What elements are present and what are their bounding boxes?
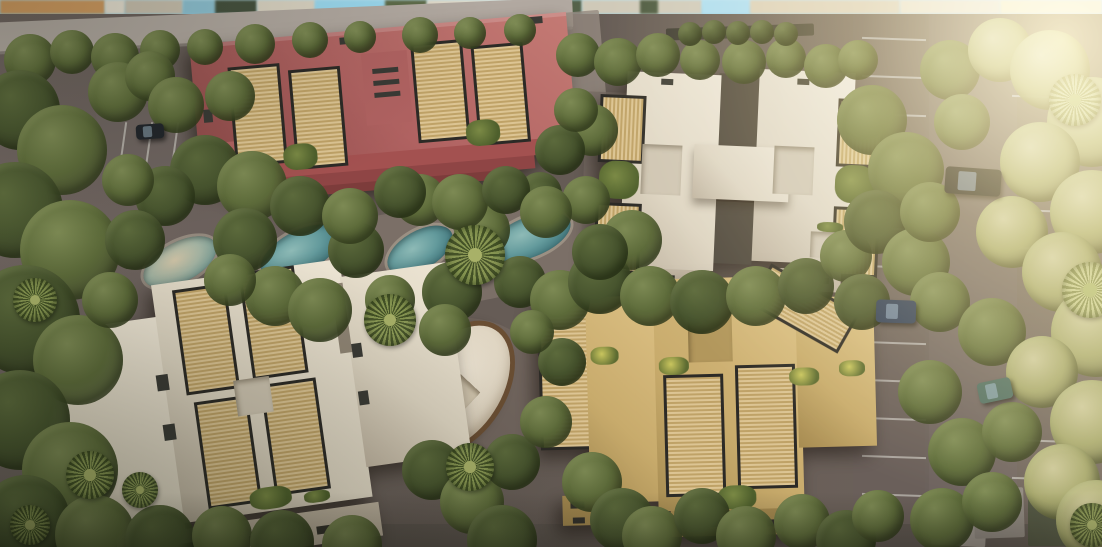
gap	[716, 73, 759, 151]
planter	[590, 346, 618, 365]
tree-canopy	[680, 40, 720, 80]
tree-canopy	[722, 40, 766, 84]
palm-tree	[13, 278, 57, 322]
palm-tree	[446, 443, 494, 491]
vent	[358, 390, 370, 405]
palm-crown-core	[464, 461, 476, 473]
vent	[661, 79, 673, 86]
tree-canopy	[204, 254, 256, 306]
palm-tree	[1049, 74, 1101, 126]
vent	[351, 343, 363, 358]
palm-tree	[122, 472, 158, 508]
palm-crown-core	[25, 520, 35, 530]
tree-canopy	[702, 20, 726, 44]
tree-canopy	[205, 71, 255, 121]
tree-canopy	[82, 272, 138, 328]
roof-deck	[663, 374, 726, 498]
tree-canopy	[520, 186, 572, 238]
tree-canopy	[432, 174, 488, 230]
tree-canopy	[670, 270, 734, 334]
tree-canopy	[374, 166, 426, 218]
tree-canopy	[636, 33, 680, 77]
tree-canopy	[454, 17, 486, 49]
car-windshield	[885, 303, 898, 319]
planter	[659, 357, 689, 376]
skyline-block	[900, 0, 1000, 14]
car-west-lot	[136, 123, 165, 140]
tree-canopy	[520, 396, 572, 448]
tree-canopy	[288, 278, 352, 342]
palm-crown-core	[136, 486, 145, 495]
skyline-block	[702, 0, 750, 14]
roof-deck	[735, 364, 798, 490]
tree-canopy	[594, 38, 642, 86]
tree-canopy	[344, 21, 376, 53]
tree-canopy	[750, 20, 774, 44]
skyline-block	[750, 0, 900, 14]
tree-canopy	[556, 33, 600, 77]
aerial-site-render	[0, 0, 1102, 547]
skyline-block	[105, 0, 125, 14]
palm-crown-core	[468, 248, 482, 262]
skyline-block	[125, 0, 183, 14]
win	[573, 517, 585, 523]
tree-canopy	[838, 40, 878, 80]
vent	[163, 423, 177, 441]
tree-canopy	[102, 154, 154, 206]
roof-deck	[410, 39, 471, 143]
car-windshield	[142, 126, 152, 137]
tree-canopy	[187, 29, 223, 65]
skyline-block	[1000, 0, 1102, 14]
palm-tree	[10, 505, 50, 545]
tree-canopy	[322, 188, 378, 244]
planter	[839, 360, 865, 377]
tree-canopy	[535, 125, 585, 175]
tree-canopy	[510, 310, 554, 354]
creamn	[233, 376, 274, 417]
redc	[361, 50, 413, 126]
tree-canopy	[419, 304, 471, 356]
palm-tree	[445, 225, 505, 285]
vent	[797, 79, 809, 86]
tree-canopy	[898, 360, 962, 424]
palm-crown-core	[1069, 94, 1081, 106]
skyline-block	[640, 0, 658, 14]
vent	[156, 374, 170, 392]
palm-crown-core	[1083, 283, 1096, 296]
car-black-east-top	[944, 166, 1002, 197]
palm-crown-core	[30, 295, 41, 306]
tree-canopy	[572, 224, 628, 280]
suv-blue	[876, 299, 917, 323]
tree-canopy	[105, 210, 165, 270]
car-windshield	[985, 383, 999, 399]
tree-canopy	[50, 30, 94, 74]
palm-tree	[364, 294, 416, 346]
tree-canopy	[402, 17, 438, 53]
palm-crown-core	[84, 469, 96, 481]
tree-canopy	[962, 472, 1022, 532]
creamn	[772, 146, 814, 196]
skyline-block	[0, 0, 105, 14]
creamn	[640, 144, 682, 196]
tree-canopy	[292, 22, 328, 58]
palm-crown-core	[384, 314, 396, 326]
skyline-block	[183, 0, 215, 14]
tree-canopy	[852, 490, 904, 542]
tree-canopy	[934, 94, 990, 150]
tree-canopy	[270, 176, 330, 236]
palm-tree	[66, 451, 114, 499]
tree-canopy	[678, 22, 702, 46]
tree-canopy	[982, 402, 1042, 462]
tree-canopy	[726, 21, 750, 45]
tree-canopy	[726, 266, 786, 326]
tree-canopy	[774, 22, 798, 46]
palm-crown-core	[1087, 520, 1098, 531]
planter	[789, 367, 819, 386]
car-windshield	[958, 171, 977, 191]
tree-canopy	[554, 88, 598, 132]
gap	[711, 201, 754, 265]
tree-canopy	[235, 24, 275, 64]
tree-canopy	[504, 14, 536, 46]
